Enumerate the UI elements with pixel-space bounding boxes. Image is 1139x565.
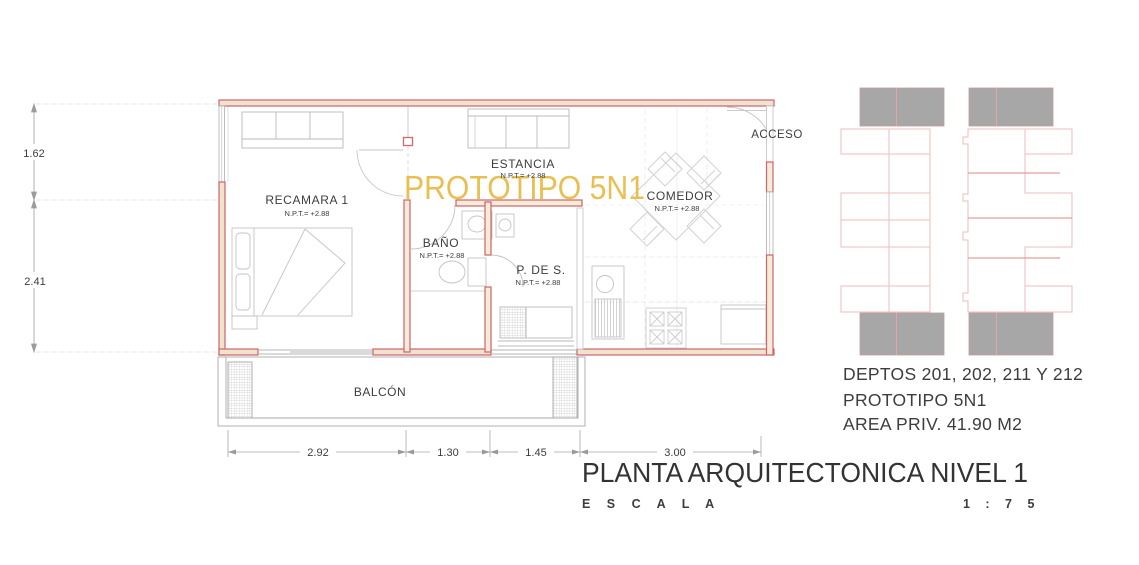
svg-text:BAÑO: BAÑO (423, 236, 459, 250)
svg-text:N.P.T.= +2.88: N.P.T.= +2.88 (285, 209, 330, 218)
svg-text:1 : 7 5: 1 : 7 5 (963, 497, 1040, 511)
svg-text:PLANTA ARQUITECTONICA NIVEL 1: PLANTA ARQUITECTONICA NIVEL 1 (582, 457, 1028, 488)
svg-text:DEPTOS 201, 202, 211 Y 212: DEPTOS 201, 202, 211 Y 212 (843, 364, 1083, 384)
svg-text:2.92: 2.92 (307, 447, 328, 459)
svg-text:P. DE S.: P. DE S. (516, 263, 565, 277)
svg-text:N.P.T.= +2.88: N.P.T.= +2.88 (516, 278, 561, 287)
svg-text:AREA PRIV. 41.90 M2: AREA PRIV. 41.90 M2 (843, 414, 1022, 434)
svg-text:COMEDOR: COMEDOR (647, 189, 714, 203)
svg-text:1.62: 1.62 (23, 148, 44, 160)
svg-text:ESTANCIA: ESTANCIA (491, 157, 555, 171)
svg-text:BALCÓN: BALCÓN (354, 384, 406, 399)
svg-text:E S C A L A: E S C A L A (582, 497, 721, 511)
svg-text:2.41: 2.41 (24, 276, 45, 288)
svg-text:1.30: 1.30 (437, 447, 458, 459)
svg-text:N.P.T.= +2.88: N.P.T.= +2.88 (420, 251, 465, 260)
svg-text:RECAMARA 1: RECAMARA 1 (265, 193, 348, 207)
svg-text:N.P.T.= +2.88: N.P.T.= +2.88 (655, 204, 700, 213)
svg-text:1.45: 1.45 (525, 447, 546, 459)
svg-text:PROTOTIPO 5N1: PROTOTIPO 5N1 (843, 390, 987, 410)
svg-text:N.P.T.= +2.88: N.P.T.= +2.88 (501, 171, 546, 180)
svg-text:ACCESO: ACCESO (751, 129, 803, 141)
